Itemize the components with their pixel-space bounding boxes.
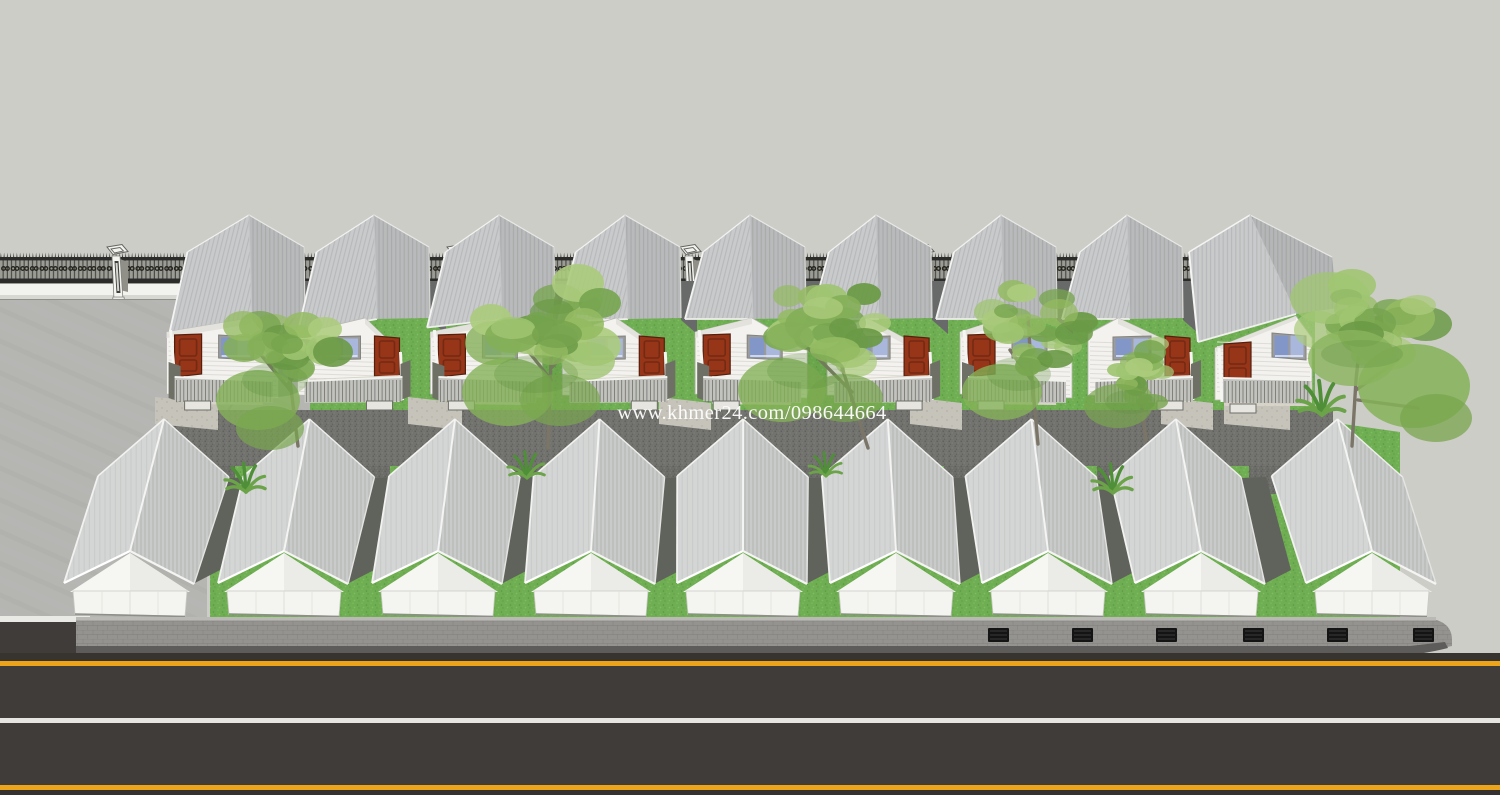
svg-text:www.khmer24.com/098644664: www.khmer24.com/098644664 (617, 402, 886, 424)
